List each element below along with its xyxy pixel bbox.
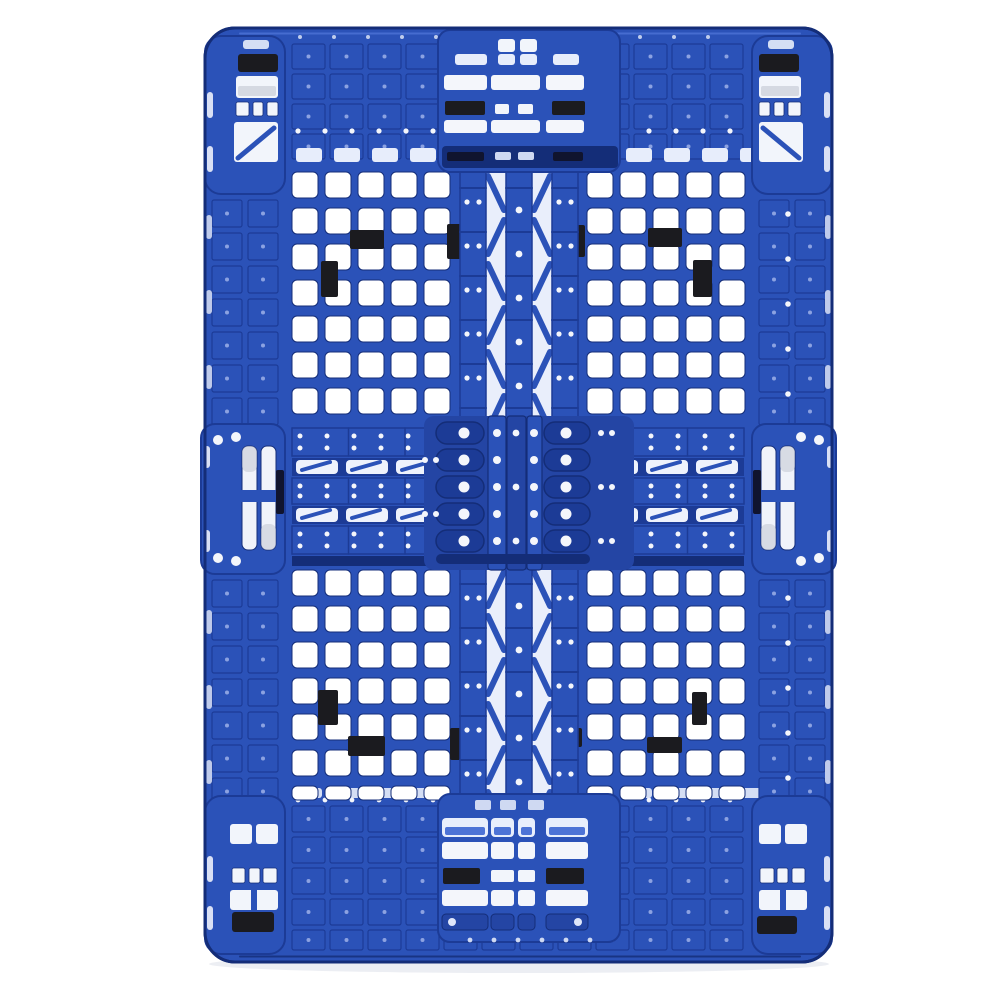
- product-photo-canvas: [0, 0, 1000, 1000]
- top-center-foot: [438, 30, 620, 172]
- corner-foot-bottom-left: [205, 796, 285, 954]
- pallet-body: [201, 28, 836, 962]
- corner-foot-top-left: [205, 36, 285, 194]
- corner-foot-bottom-right: [752, 796, 832, 954]
- center-foot: [422, 416, 634, 570]
- bottom-center-foot: [438, 794, 620, 942]
- edge-foot-left: [201, 424, 285, 574]
- pallet-top-view: [201, 28, 836, 973]
- blue-plastic-pallet: [0, 0, 1000, 1000]
- corner-foot-top-right: [752, 36, 832, 194]
- edge-foot-right: [752, 424, 836, 574]
